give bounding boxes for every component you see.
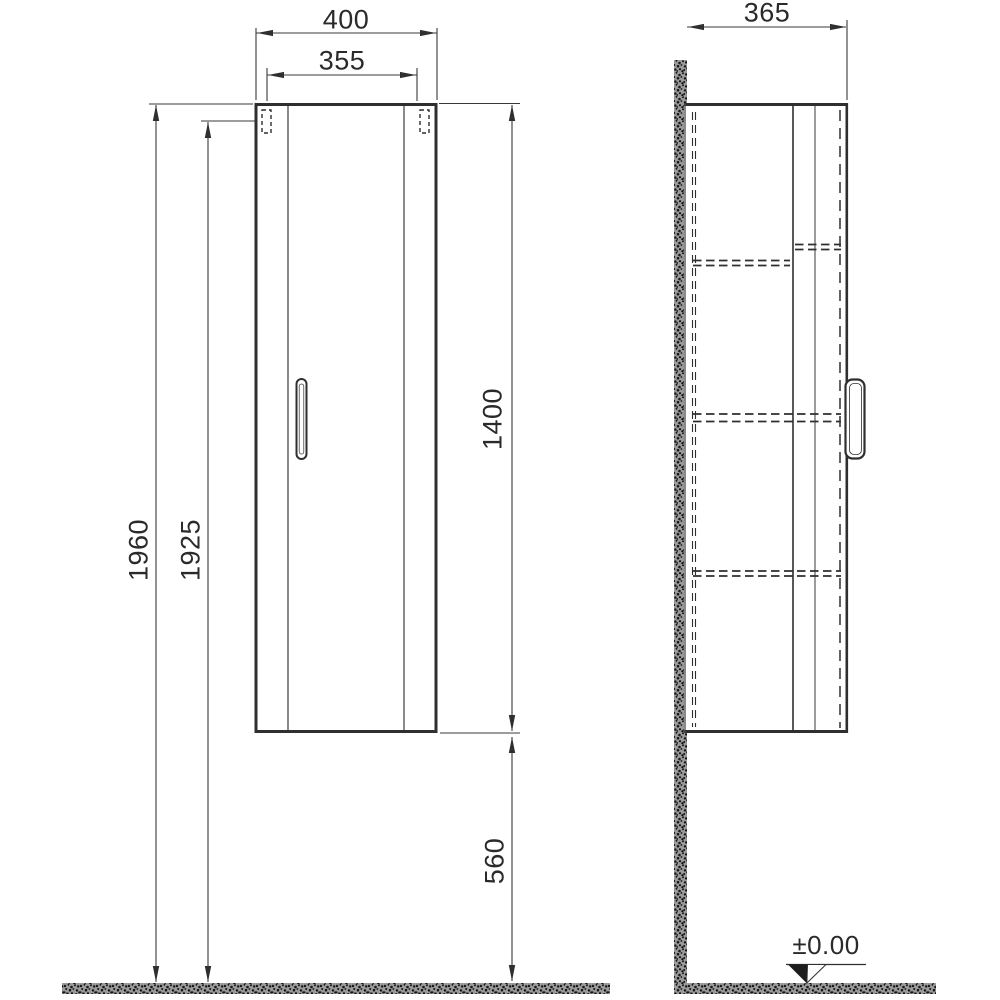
cabinet-side-outline (684, 103, 848, 733)
floor-level-label: ±0.00 (792, 932, 859, 958)
front-view (62, 28, 610, 994)
dim-overall-width-label: 400 (323, 7, 370, 34)
dim-floor-clearance-label: 560 (482, 838, 509, 885)
dim-door-height-label: 1925 (178, 519, 205, 581)
dim-depth (687, 20, 847, 100)
door-handle-front (297, 379, 307, 459)
technical-drawing-canvas: 400 355 1960 1925 1400 560 365 ±0.00 (0, 0, 1000, 1000)
side-view (674, 20, 936, 994)
cabinet-front-outline (256, 105, 436, 732)
dim-cabinet-height-label: 1400 (480, 388, 507, 450)
floor-hatch-side (674, 983, 936, 994)
floor-hatch-front (62, 983, 610, 994)
level-marker-icon (786, 965, 866, 984)
dim-overall-height-label: 1960 (126, 519, 153, 581)
door-handle-side (846, 380, 865, 459)
dim-door-width-label: 355 (319, 48, 366, 75)
dim-door-height (201, 121, 256, 982)
dim-depth-label: 365 (744, 0, 791, 27)
dim-floor-clearance (509, 737, 515, 981)
